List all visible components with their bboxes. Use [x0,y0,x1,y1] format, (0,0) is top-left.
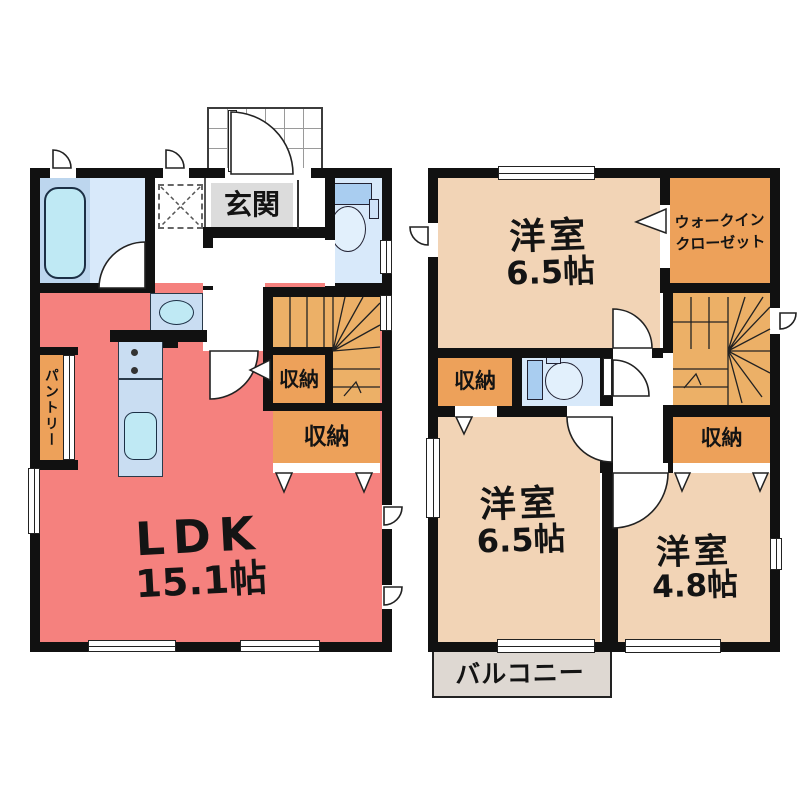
bedroom-right-label: 洋室 4.8帖 [610,511,779,625]
bedroom-right-door-gap [613,463,668,473]
wall [428,168,780,178]
toilet-door-leaf [603,358,612,396]
bedroom-top-door-gap [613,348,652,358]
storage-left-2f-label: 収納 [438,366,512,396]
storage-folding-door-gap [673,463,770,473]
storage-folding-door-gap [455,406,497,417]
bedroom-left-label: 洋室 6.5帖 [436,463,605,581]
second-floor-plan [0,0,800,800]
ldk-size: 15.1帖 [134,558,268,605]
stairs-entry-gap [663,353,673,405]
wall [428,642,780,652]
wall [663,293,673,353]
window [625,639,721,653]
pantry-label: パントリー [38,358,63,458]
wall [663,405,780,417]
window [498,166,595,180]
bedroom-top-label: 洋室 6.5帖 [448,195,652,314]
wall [428,406,455,417]
wall [660,283,780,293]
storage-right-2f-label: 収納 [673,423,770,453]
walk-in-closet-label: ウォークイン クローゼット [671,194,769,269]
balcony-label: バルコニー [436,654,605,695]
ldk-label: LDK 15.1帖 [92,487,309,628]
toilet-bowl-icon [545,362,583,400]
wall [600,417,613,473]
toilet-tank-icon [527,360,543,400]
vent-window-gap [428,223,438,257]
floorplan-canvas: 玄関 [0,0,800,800]
storage-wide-label: 収納 [273,421,380,453]
closet-opening-gap [660,205,670,268]
wall [497,406,567,417]
vent-window-gap [770,308,780,334]
storage-small-label: 収納 [273,366,325,394]
stairs-2f [673,293,770,405]
bedroom-left-door-gap [567,406,612,417]
window [497,639,595,653]
wall [663,417,673,463]
